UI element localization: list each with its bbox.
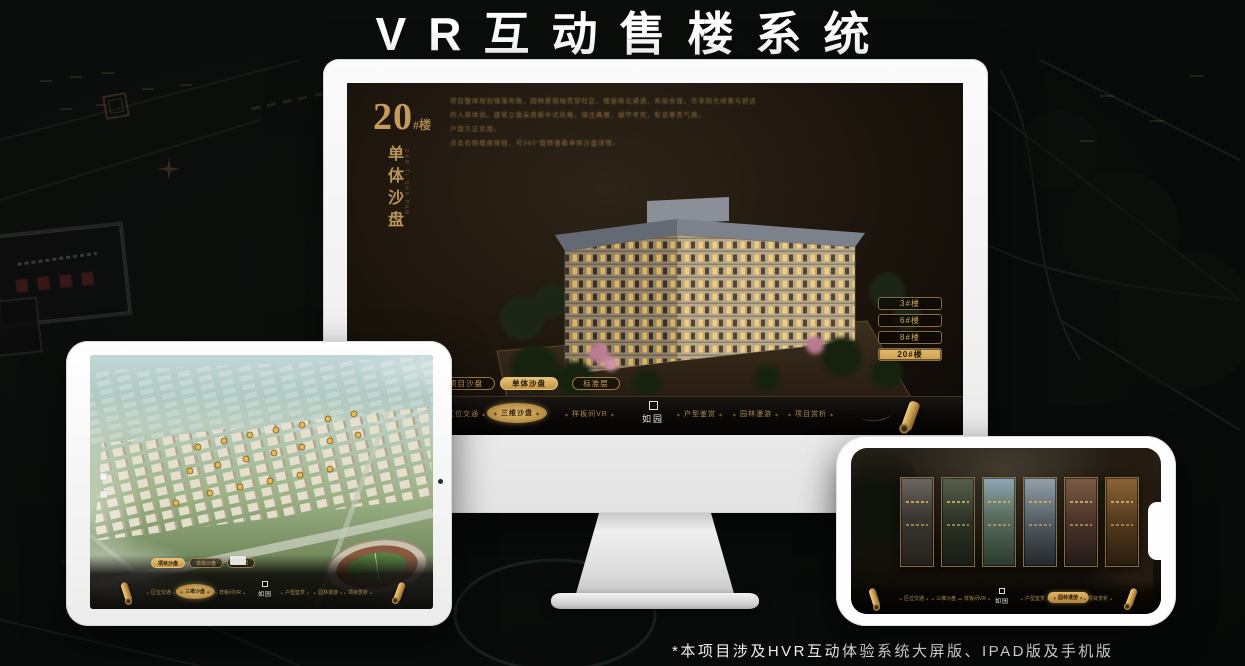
nav-item-unit-gallery[interactable]: 户型鉴赏 (1019, 595, 1052, 602)
mode-single-sandtable[interactable]: 单体沙盘 (500, 377, 558, 390)
nav-item-3d-sandtable[interactable]: 三维沙盘 (487, 403, 547, 423)
scene-panel-3[interactable] (982, 477, 1016, 567)
mode-standard-floor[interactable]: 标准层 (572, 377, 620, 390)
floor-button-3[interactable]: 3#楼 (878, 297, 942, 310)
brand-logo-text: 如园 (642, 412, 664, 425)
floor-button-20[interactable]: 20#楼 (878, 348, 942, 361)
mode-single-sandtable[interactable]: 单体沙盘 (189, 558, 223, 568)
tablet-nav-bar: 项目沙盘 单体沙盘 标准层 区位交通 三维沙盘 样板间VR 如园 户型鉴赏 园林… (90, 555, 433, 609)
footnote: *本项目涉及HVR互动体验系统大屏版、IPAD版及手机版 (672, 640, 1113, 661)
brand-seal-icon (999, 588, 1005, 594)
scroll-handle-icon[interactable] (1125, 587, 1138, 608)
scroll-handle-icon[interactable] (868, 587, 881, 608)
nav-item-project-overview[interactable]: 项目赏析 (342, 589, 375, 596)
scene-panel-1[interactable] (900, 477, 934, 567)
nav-item-project-overview[interactable]: 项目赏析 (785, 409, 837, 419)
brand-logo-text: 如园 (258, 589, 272, 598)
description-line: 户型方正实用。 (450, 123, 757, 137)
brand-seal-icon (262, 581, 268, 587)
tablet-device: 项目沙盘 单体沙盘 标准层 区位交通 三维沙盘 样板间VR 如园 户型鉴赏 园林… (66, 341, 452, 626)
nav-item-location-traffic[interactable]: 区位交通 (145, 589, 178, 596)
scroll-flourish (861, 407, 892, 423)
brand-logo-text: 如园 (995, 596, 1009, 605)
tablet-screen: 项目沙盘 单体沙盘 标准层 区位交通 三维沙盘 样板间VR 如园 户型鉴赏 园林… (90, 355, 433, 609)
screen-subtitle-en: DAN TI SHA PAN (403, 149, 409, 216)
phone-nav-bar: 区位交通 三维沙盘 样板间VR 如园 户型鉴赏 园林漫游 项目赏析 (851, 581, 1161, 614)
building-number-suffix: #楼 (413, 118, 431, 132)
floor-button-6[interactable]: 6#楼 (878, 314, 942, 327)
tablet-camera-icon (438, 479, 443, 484)
monitor-base (551, 593, 759, 609)
scroll-handle-icon[interactable] (120, 581, 133, 602)
nav-item-unit-gallery[interactable]: 户型鉴赏 (674, 409, 726, 419)
poster: VR互动售楼系统 (0, 0, 1245, 666)
scene-panel-5[interactable] (1064, 477, 1098, 567)
nav-item-showroom-vr[interactable]: 样板间VR (562, 409, 618, 419)
phone-device: 区位交通 三维沙盘 样板间VR 如园 户型鉴赏 园林漫游 项目赏析 (836, 436, 1176, 626)
scene-panel-4[interactable] (1023, 477, 1057, 567)
floor-button-8[interactable]: 8#楼 (878, 331, 942, 344)
nav-item-3d-sandtable[interactable]: 三维沙盘 (176, 584, 215, 599)
brand-logo: 如园 (995, 588, 1009, 605)
building-headline: 20#楼 (373, 95, 431, 139)
scene-panel-6[interactable] (1105, 477, 1139, 567)
nav-item-showroom-vr[interactable]: 样板间VR (958, 595, 993, 602)
brand-logo: 如园 (642, 401, 664, 425)
description-line: 项目整体规划错落有致，园林景观轴贯穿社区，楼座南北通透、布局合理，尽享阳光绿意与… (450, 95, 757, 109)
phone-notch (1148, 502, 1161, 560)
page-title: VR互动售楼系统 (0, 0, 1245, 64)
scene-panel-2[interactable] (941, 477, 975, 567)
description-line: 点击右侧楼座按钮，可360°旋转查看单体沙盘详情。 (450, 137, 757, 151)
scroll-handle-icon[interactable] (393, 581, 406, 602)
nav-item-project-overview[interactable]: 项目赏析 (1082, 595, 1115, 602)
brand-seal-icon (648, 401, 657, 410)
nav-item-location-traffic[interactable]: 区位交通 (898, 595, 931, 602)
building-number: 20 (373, 96, 413, 138)
certificate-plaque-small (0, 296, 43, 359)
nav-item-unit-gallery[interactable]: 户型鉴赏 (279, 589, 312, 596)
monitor-stand (575, 513, 735, 597)
nav-item-garden-roam[interactable]: 园林漫游 (730, 409, 782, 419)
scroll-handle-icon[interactable] (900, 400, 921, 432)
tooltip-chip (230, 556, 246, 565)
description-paragraph: 项目整体规划错落有致，园林景观轴贯穿社区，楼座南北通透、布局合理，尽享阳光绿意与… (450, 95, 757, 151)
brand-stamp-icon (102, 92, 130, 120)
phone-screen: 区位交通 三维沙盘 样板间VR 如园 户型鉴赏 园林漫游 项目赏析 (851, 448, 1161, 614)
screen-subtitle: 单体沙盘 (381, 145, 405, 233)
nav-item-showroom-vr[interactable]: 样板间VR (213, 589, 248, 596)
nav-item-garden-roam[interactable]: 园林漫游 (312, 589, 345, 596)
description-line: 的人居体验。建筑立面采用新中式风格，端庄典雅、细节考究，彰显尊贵气质。 (450, 109, 757, 123)
brand-logo: 如园 (258, 581, 272, 598)
mode-project-sandtable[interactable]: 项目沙盘 (151, 558, 185, 568)
certificate-seal-marks (15, 272, 94, 293)
